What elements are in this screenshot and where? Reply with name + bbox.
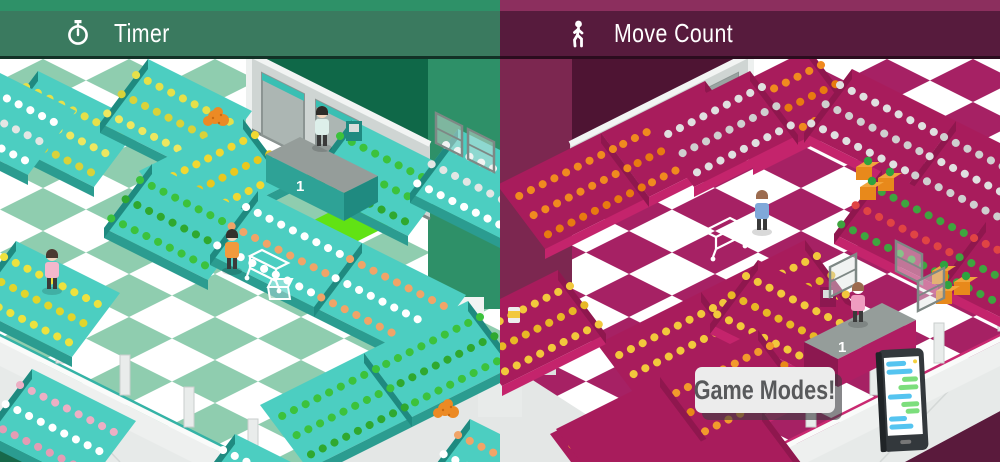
game-modes-caption: Game Modes!	[695, 367, 835, 413]
move-count-header: Move Count	[500, 11, 1000, 56]
home-button	[900, 440, 911, 445]
timer-header: Timer	[0, 11, 500, 56]
move-count-top-strip	[500, 0, 1000, 11]
checkout-number: 1	[838, 339, 846, 356]
timer-scene-art: 1	[0, 59, 500, 462]
checkout-number: 1	[296, 178, 304, 195]
game-modes-caption-label: Game Modes!	[694, 375, 836, 406]
move-count-title: Move Count	[614, 18, 733, 49]
shopping-basket[interactable]	[268, 279, 292, 299]
panel-timer: Timer	[0, 0, 500, 462]
stopwatch-icon	[64, 19, 92, 49]
game-modes-promo: Timer	[0, 0, 1000, 462]
walking-person-icon	[564, 19, 592, 49]
phone[interactable]	[875, 348, 928, 452]
timer-title: Timer	[114, 18, 170, 49]
timer-top-strip	[0, 0, 500, 11]
canned-item	[508, 307, 520, 323]
timer-scene[interactable]: 1	[0, 59, 500, 462]
